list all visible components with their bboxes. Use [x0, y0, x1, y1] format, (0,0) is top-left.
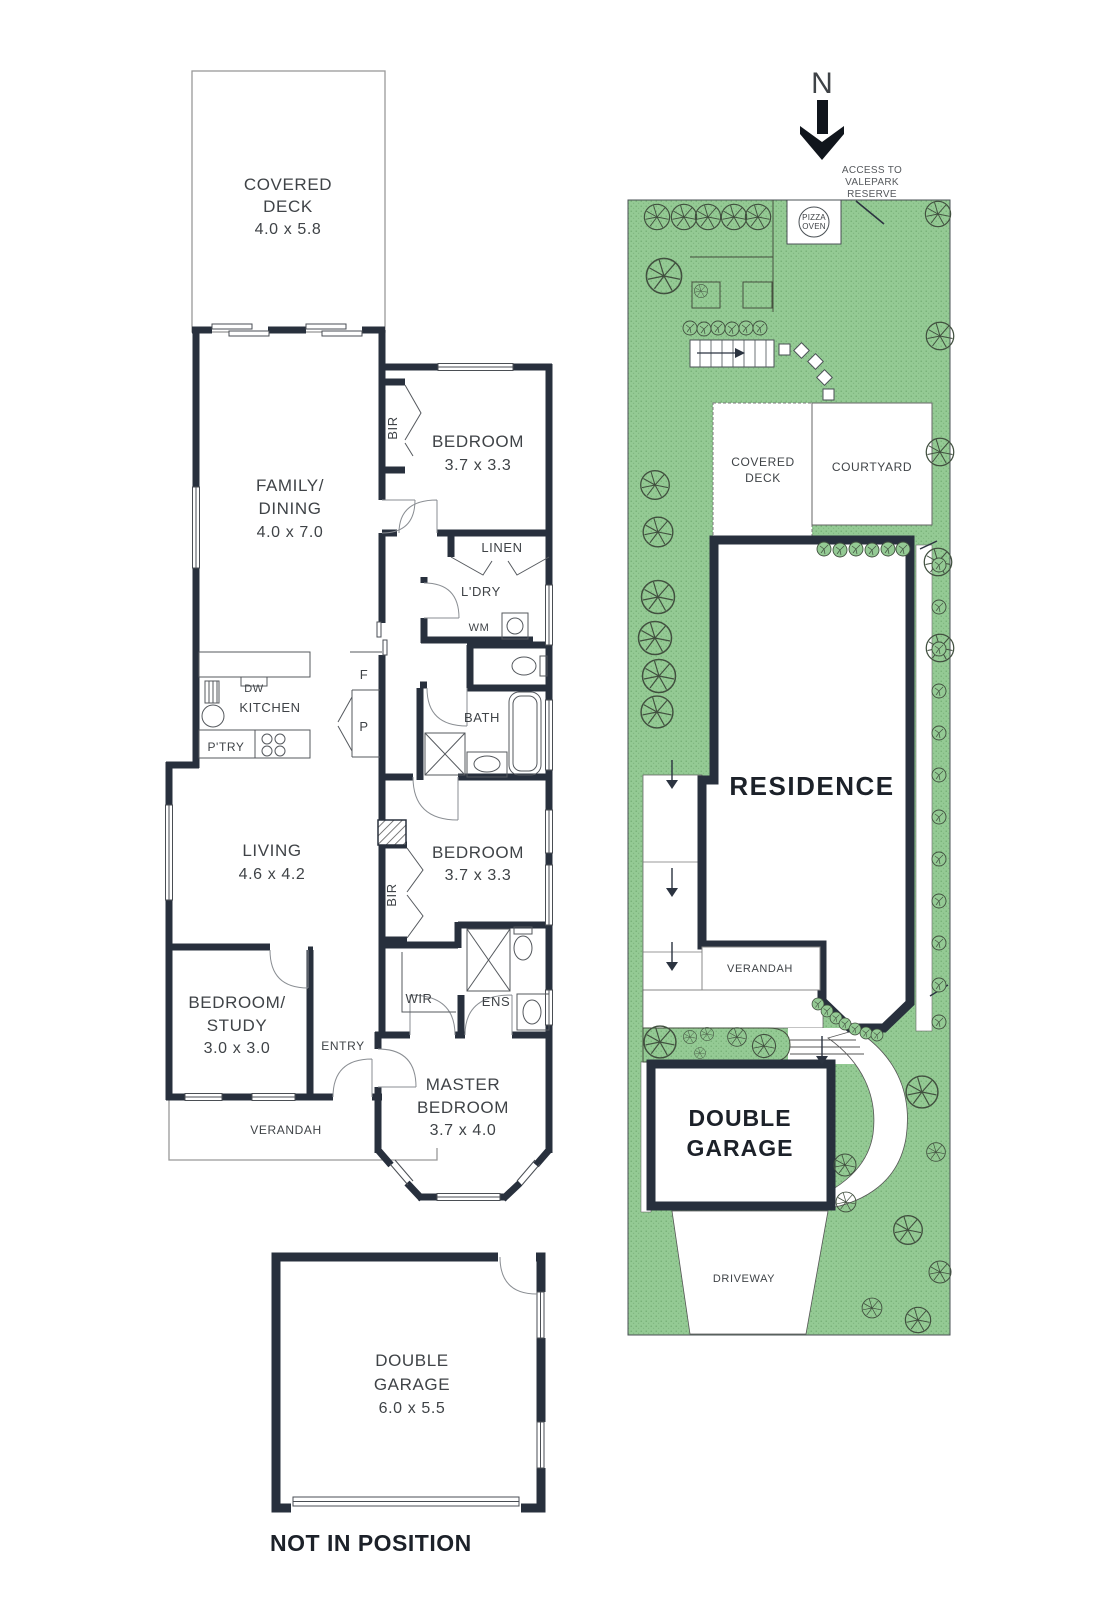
- dw-label: DW: [244, 683, 264, 695]
- fireplace-icon: [378, 820, 406, 845]
- sink-icon: [202, 705, 224, 727]
- bir1-label: BIR: [385, 416, 400, 439]
- living-label: LIVING: [242, 841, 301, 860]
- site-plan: PIZZA OVEN COVERED DECK COURTYARD RESIDE…: [628, 165, 954, 1335]
- bir2-label: BIR: [384, 883, 399, 906]
- bathtub-icon: [509, 692, 541, 775]
- toilet-icon: [512, 657, 536, 675]
- study-label-1: BEDROOM/: [188, 993, 285, 1012]
- site-courtyard-label: COURTYARD: [832, 460, 912, 474]
- covered-deck-label-2: DECK: [263, 197, 313, 216]
- ens-toilet-icon: [514, 936, 532, 960]
- family-label-2: DINING: [258, 499, 321, 518]
- bedroom2-label: BEDROOM: [432, 843, 524, 862]
- garage-dims: 6.0 x 5.5: [379, 1400, 446, 1417]
- floor-plan: COVERED DECK 4.0 x 5.8: [166, 71, 553, 1201]
- entry-label: ENTRY: [321, 1039, 364, 1053]
- north-label: N: [811, 67, 833, 100]
- site-garage-label-2: GARAGE: [687, 1135, 794, 1161]
- ldry-label: L'DRY: [461, 584, 501, 599]
- garage-label-1: DOUBLE: [375, 1351, 449, 1370]
- garage-label-2: GARAGE: [374, 1375, 450, 1394]
- wir-label: WIR: [405, 991, 432, 1006]
- linen-label: LINEN: [481, 540, 522, 555]
- driveway-label: DRIVEWAY: [713, 1273, 775, 1285]
- ens-label: ENS: [482, 994, 511, 1009]
- boardwalk-steps: [690, 340, 774, 367]
- covered-deck-dims: 4.0 x 5.8: [255, 221, 322, 238]
- master-label-2: BEDROOM: [417, 1098, 509, 1117]
- access-label-2: VALEPARK: [845, 177, 899, 188]
- master-label-1: MASTER: [426, 1075, 500, 1094]
- access-label-3: RESERVE: [847, 189, 897, 200]
- north-compass: N: [800, 67, 844, 160]
- site-verandah-label: VERANDAH: [727, 963, 793, 975]
- right-path: [916, 545, 932, 1031]
- access-label-1: ACCESS TO: [842, 165, 902, 176]
- pizza-oven-label-1: PIZZA: [802, 213, 826, 222]
- fridge-label: F: [360, 667, 369, 682]
- family-dims: 4.0 x 7.0: [257, 524, 324, 541]
- pantry-label: P: [359, 719, 368, 734]
- ens-basin-icon: [523, 1000, 541, 1024]
- site-covered-deck-label-2: DECK: [745, 471, 781, 485]
- kitchen-label: KITCHEN: [239, 700, 300, 715]
- living-dims: 4.6 x 4.2: [239, 866, 306, 883]
- bedroom1-dims: 3.7 x 3.3: [445, 457, 512, 474]
- plan-svg: PIZZA OVEN COVERED DECK COURTYARD RESIDE…: [0, 0, 1115, 1600]
- wet-area-fixtures: [402, 613, 549, 1030]
- garage-detail: DOUBLE GARAGE 6.0 x 5.5 NOT IN POSITION: [270, 1249, 548, 1556]
- washing-machine-icon: [502, 613, 528, 639]
- family-label-1: FAMILY/: [256, 476, 324, 495]
- bedroom1-label: BEDROOM: [432, 432, 524, 451]
- bedroom2-dims: 3.7 x 3.3: [445, 867, 512, 884]
- north-arrow-icon: [817, 100, 828, 134]
- pizza-oven: PIZZA OVEN: [787, 200, 841, 244]
- verandah-label: VERANDAH: [250, 1123, 321, 1137]
- covered-deck-label-1: COVERED: [244, 175, 332, 194]
- study-dims: 3.0 x 3.0: [204, 1040, 271, 1057]
- not-in-position-note: NOT IN POSITION: [270, 1530, 472, 1556]
- site-garage-label-1: DOUBLE: [688, 1105, 791, 1131]
- floor-plan-page: PIZZA OVEN COVERED DECK COURTYARD RESIDE…: [0, 0, 1115, 1600]
- wm-label: WM: [469, 622, 490, 634]
- site-covered-deck-label-1: COVERED: [731, 455, 795, 469]
- basin-icon: [474, 756, 500, 772]
- bath-label: BATH: [464, 710, 500, 725]
- cooktop-icon: [262, 734, 272, 744]
- residence-label: RESIDENCE: [729, 771, 894, 801]
- ptry-label: P'TRY: [207, 740, 244, 754]
- rear-walk: [643, 990, 823, 1028]
- pizza-oven-label-2: OVEN: [802, 222, 825, 231]
- study-label-2: STUDY: [207, 1016, 268, 1035]
- master-dims: 3.7 x 4.0: [430, 1122, 497, 1139]
